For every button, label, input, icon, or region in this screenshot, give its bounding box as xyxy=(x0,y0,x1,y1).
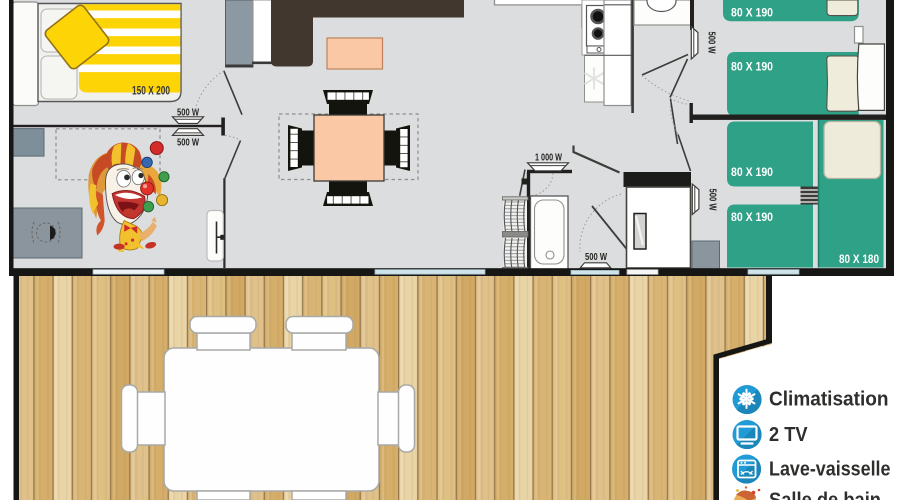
svg-text:80 X 190: 80 X 190 xyxy=(731,167,773,179)
svg-text:80 X 180: 80 X 180 xyxy=(839,254,879,266)
svg-text:1 000 W: 1 000 W xyxy=(535,152,562,163)
svg-text:80 X 190: 80 X 190 xyxy=(731,62,773,74)
svg-text:500 W: 500 W xyxy=(706,32,717,54)
svg-text:500 W: 500 W xyxy=(177,138,199,149)
svg-text:Salle de bain: Salle de bain xyxy=(769,489,881,500)
svg-text:80 X 190: 80 X 190 xyxy=(731,8,773,20)
svg-text:500 W: 500 W xyxy=(707,189,718,211)
svg-text:500 W: 500 W xyxy=(585,252,607,263)
svg-text:Climatisation: Climatisation xyxy=(769,388,889,411)
svg-text:500 W: 500 W xyxy=(177,107,199,118)
svg-text:2 TV: 2 TV xyxy=(769,423,808,446)
svg-text:150 X 200: 150 X 200 xyxy=(132,84,170,98)
svg-text:Lave-vaisselle: Lave-vaisselle xyxy=(769,458,891,481)
svg-text:80 X 190: 80 X 190 xyxy=(731,212,773,224)
